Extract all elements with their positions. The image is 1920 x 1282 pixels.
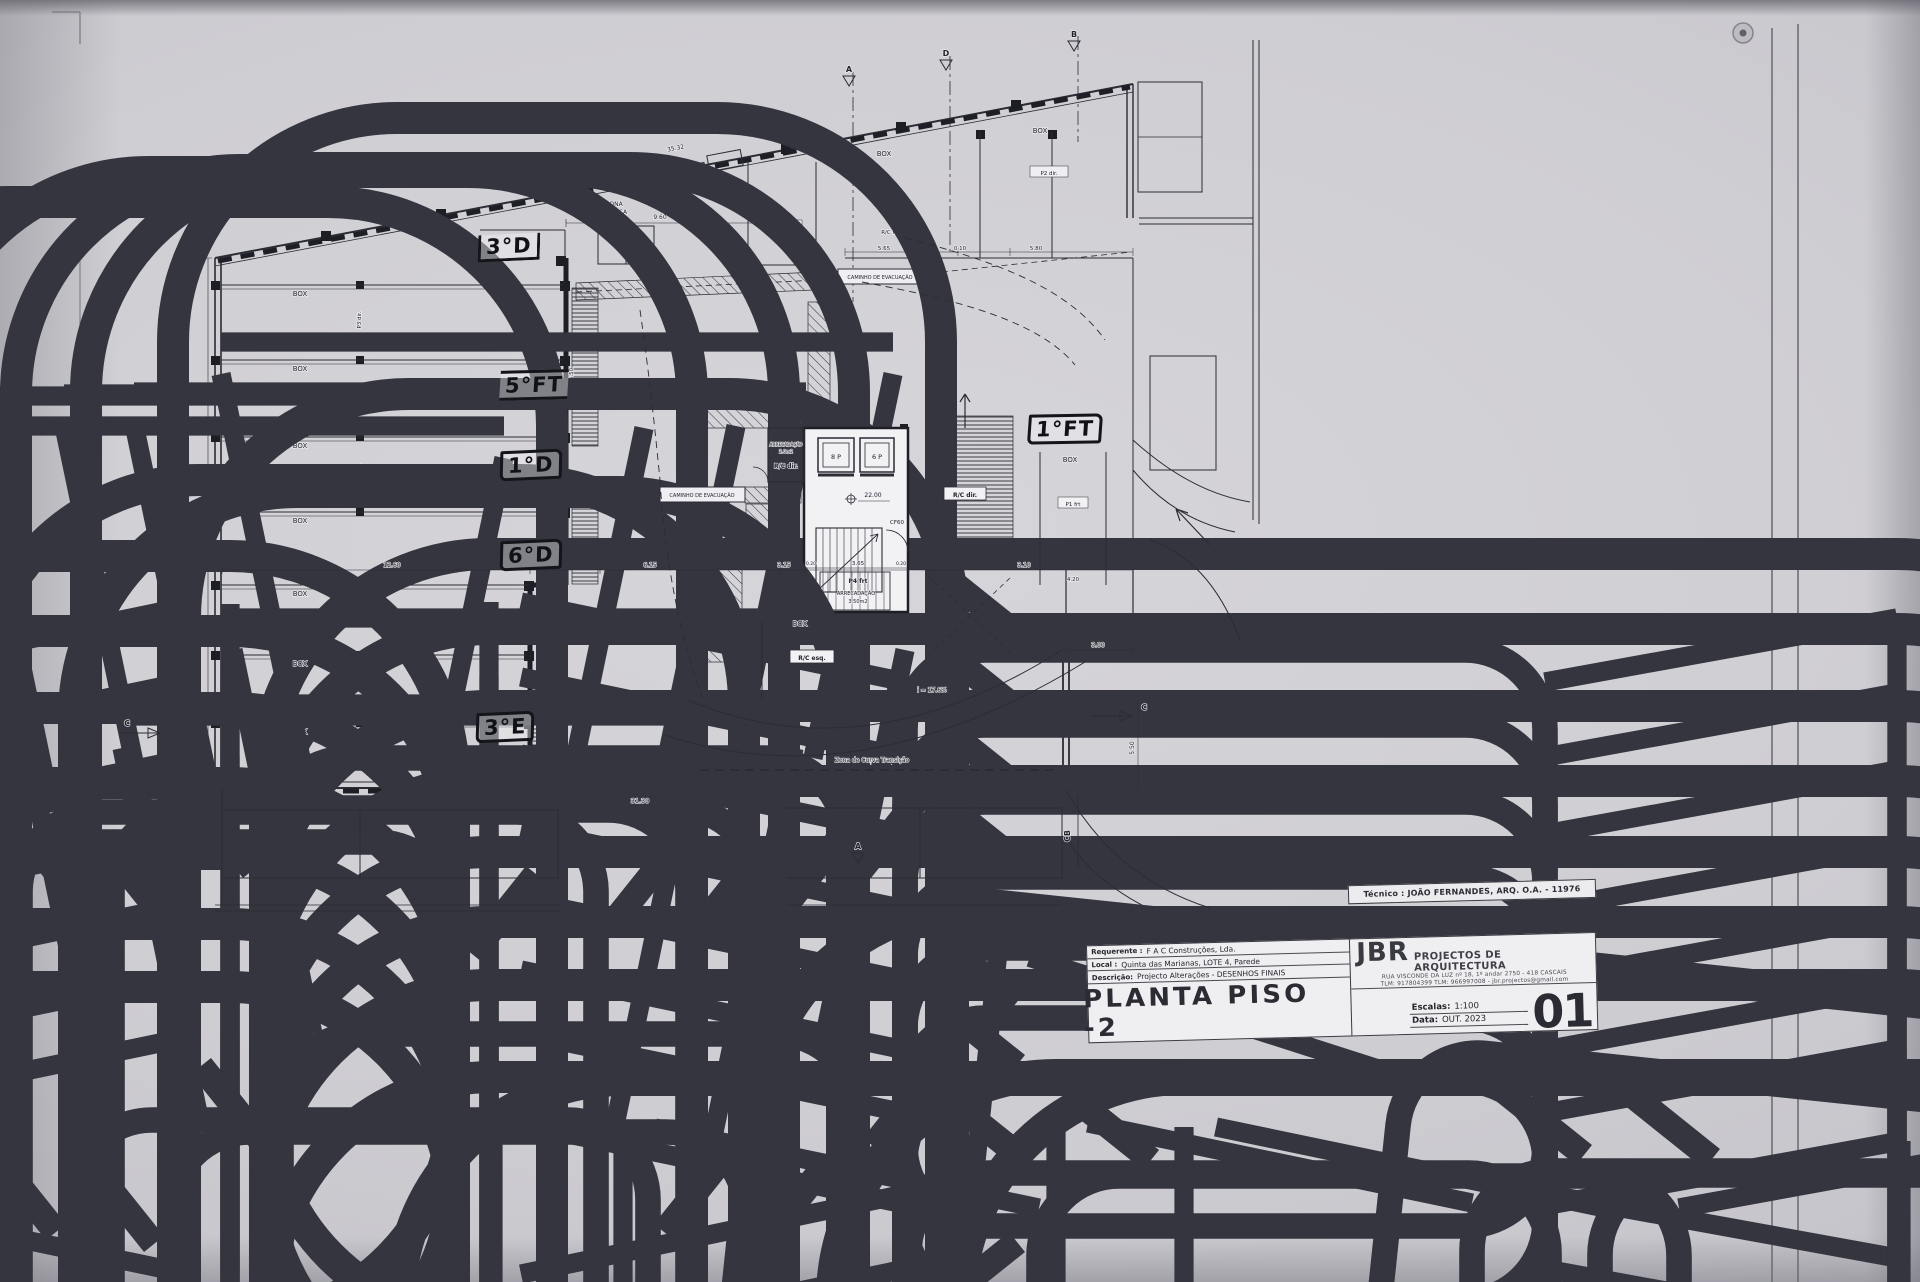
dimension-right-width: 3.00	[1091, 642, 1105, 649]
elevator-label: 8 P	[831, 453, 841, 461]
p2-dir-label: P2 dir.	[1040, 171, 1057, 177]
caminho-evacuacao-label: CAMINHO DE EVACUAÇÃO	[847, 274, 912, 281]
arrecadacao-area: 3.50m2	[848, 599, 867, 605]
dimension-right-height: 5.50	[1129, 741, 1136, 755]
data-label: Data:	[1412, 1015, 1438, 1026]
handwritten-unit-1ft: 1°FT	[1027, 413, 1103, 444]
dimension: 6.15	[643, 562, 657, 569]
dimension: 0.10	[954, 246, 967, 252]
dimension: 5.65	[878, 246, 891, 252]
box-label: BOX	[1033, 127, 1048, 135]
box-label: BOX	[293, 590, 308, 598]
box-label: BOX	[1063, 456, 1078, 464]
dimension-bottom-width: 31.30	[631, 797, 650, 805]
title-block-right: JBR PROJECTOS DE ARQUITECTURA RUA VISCON…	[1350, 933, 1597, 1035]
caminho-evacuacao-label: CAMINHO DE EVACUAÇÃO	[669, 492, 734, 499]
arrecadacao-area: 2.0m2	[779, 449, 793, 455]
handwritten-unit-5ft: 5°FT	[499, 369, 569, 401]
box-label: BOX	[293, 517, 308, 525]
stall-label: P3 dir.	[357, 311, 363, 328]
data-value: OUT. 2023	[1442, 1014, 1486, 1025]
local-label: Local :	[1091, 961, 1117, 970]
dimension: 5.80	[1030, 246, 1043, 252]
rc-dir-label: R/C dir.	[953, 492, 977, 499]
dimension: 12.60	[383, 562, 400, 569]
scale-date-box: Escalas: 1:100 Data: OUT. 2023	[1409, 985, 1528, 1042]
box-label: BOX	[877, 150, 892, 158]
firm-block: JBR PROJECTOS DE ARQUITECTURA RUA VISCON…	[1350, 933, 1596, 989]
dimension-stall-length: 4.20	[1067, 577, 1080, 583]
rc-esq-label: R/C esq.	[798, 655, 826, 662]
arrecadacao-label: ARRECADAÇÃO	[837, 590, 875, 597]
title-block-left: Requerente : F A C Construções, Lda. Loc…	[1087, 939, 1352, 1042]
requerente-label: Requerente :	[1091, 947, 1143, 956]
zona-curva-label: Zona de Curva Transição	[835, 757, 910, 764]
level-mark: 22.00	[864, 492, 881, 499]
dimension-core: 0.20	[896, 561, 906, 567]
handwritten-unit-3d: 3°D	[478, 233, 540, 263]
box-label: BOX	[793, 620, 808, 628]
escala-value: 1:100	[1454, 1001, 1479, 1012]
descricao-label: Descrição:	[1092, 973, 1133, 982]
p1-frt-label: P1 frt	[1066, 502, 1082, 508]
section-marker: D	[943, 49, 950, 58]
section-marker: C	[1141, 703, 1147, 712]
rc-dir-label: R/C dir.	[774, 463, 798, 470]
dimension: 3.10	[1017, 562, 1031, 569]
section-marker: A	[846, 65, 853, 74]
dimension-core: 0.20	[806, 561, 816, 567]
title-block-main: Requerente : F A C Construções, Lda. Loc…	[1086, 932, 1598, 1043]
p4-frt-label: P4 frt	[848, 578, 867, 585]
evacuation-path-mid: CAMINHO DE EVACUAÇÃO	[660, 487, 745, 502]
arrecadacao-label: ARRECADAÇÃO	[770, 441, 804, 448]
escala-label: Escalas:	[1412, 1002, 1451, 1013]
box-label: BOX	[293, 660, 308, 668]
section-marker: CB	[1063, 830, 1072, 842]
section-marker: C	[124, 719, 130, 728]
dimension-top-slant: 35.32	[667, 143, 685, 153]
hole-punch-icon	[1733, 23, 1753, 43]
handwritten-unit-3e: 3°E	[476, 711, 535, 744]
section-markers-top: A D B	[843, 30, 1080, 86]
handwritten-unit-6d: 6°D	[500, 539, 562, 572]
box-label: BOX	[293, 290, 308, 298]
requerente-value: F A C Construções, Lda.	[1146, 944, 1235, 955]
sheet-number: 01	[1527, 983, 1597, 1039]
elevator-label: 6 P	[872, 453, 882, 461]
dimension-core: 3.65	[852, 561, 865, 567]
dimension-top-width: 9.60	[653, 214, 667, 221]
ramp-slope-label: i = 17.6%	[917, 687, 947, 694]
section-marker: B	[1071, 30, 1077, 39]
floor-plan-drawing: BOX BOX BOX BOX BOX BOX BOX P3 dir. P6 f…	[0, 0, 1920, 1282]
section-marker: A	[855, 842, 862, 851]
box-label: BOX	[293, 365, 308, 373]
cf60-label: CF60	[890, 520, 905, 526]
firm-logo: JBR	[1356, 940, 1409, 965]
data-row: Data: OUT. 2023	[1410, 1012, 1528, 1028]
dimension: 3.15	[777, 562, 791, 569]
handwritten-unit-1d: 1°D	[500, 449, 562, 482]
drawing-title: PLANTA PISO -2	[1083, 977, 1357, 1042]
